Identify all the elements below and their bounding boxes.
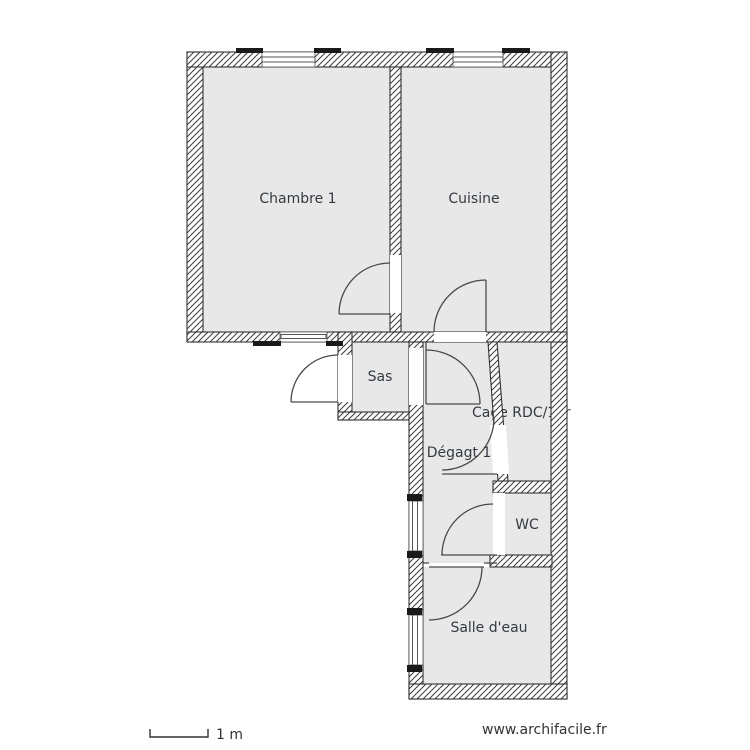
watermark: www.archifacile.fr	[482, 722, 607, 738]
door-arc-entrance	[291, 355, 338, 402]
scale-label: 1 m	[216, 727, 243, 743]
window-cuisine-north	[453, 52, 503, 67]
wall-outer-north	[187, 52, 567, 67]
opening-cuisine	[434, 332, 486, 342]
window-cap	[326, 341, 343, 346]
window-cap	[253, 341, 281, 346]
room-label-salle-eau: Salle d'eau	[450, 620, 527, 636]
room-label-sas: Sas	[368, 369, 393, 385]
scale-bar	[150, 729, 208, 737]
window-chambre-south	[280, 332, 327, 342]
wall-wc-south	[490, 555, 552, 567]
wall-wc-north	[493, 481, 551, 493]
wall-outer-south	[409, 684, 567, 699]
window-cap	[426, 48, 454, 53]
room-label-wc: WC	[515, 517, 539, 533]
opening-sas-degagement	[409, 348, 423, 405]
window-cap	[502, 48, 530, 53]
window-cap	[407, 551, 422, 558]
opening-wc	[493, 493, 505, 555]
window-degagement-west	[409, 501, 423, 551]
window-salle-eau-west	[409, 615, 423, 665]
window-cap	[236, 48, 263, 53]
room-label-cuisine: Cuisine	[448, 191, 499, 207]
window-cap	[407, 494, 422, 501]
floor-plan-canvas: Cage RDC/1er	[0, 0, 750, 750]
window-chambre-north	[262, 52, 315, 67]
window-cap	[314, 48, 341, 53]
wall-outer-east	[551, 52, 567, 699]
room-label-degagement: Dégagt 1	[427, 445, 492, 461]
footer: 1 m www.archifacile.fr	[150, 722, 607, 743]
window-cap	[407, 608, 422, 615]
opening-chambre-cuisine	[390, 255, 401, 313]
opening-cage	[490, 425, 509, 474]
wall-outer-west	[187, 52, 203, 342]
floor-plan-page: Cage RDC/1er	[0, 0, 750, 750]
room-label-chambre1: Chambre 1	[259, 191, 336, 207]
opening-entrance-sas	[338, 355, 352, 402]
window-cap	[407, 665, 422, 672]
wall-mid-horizontal	[187, 332, 567, 342]
